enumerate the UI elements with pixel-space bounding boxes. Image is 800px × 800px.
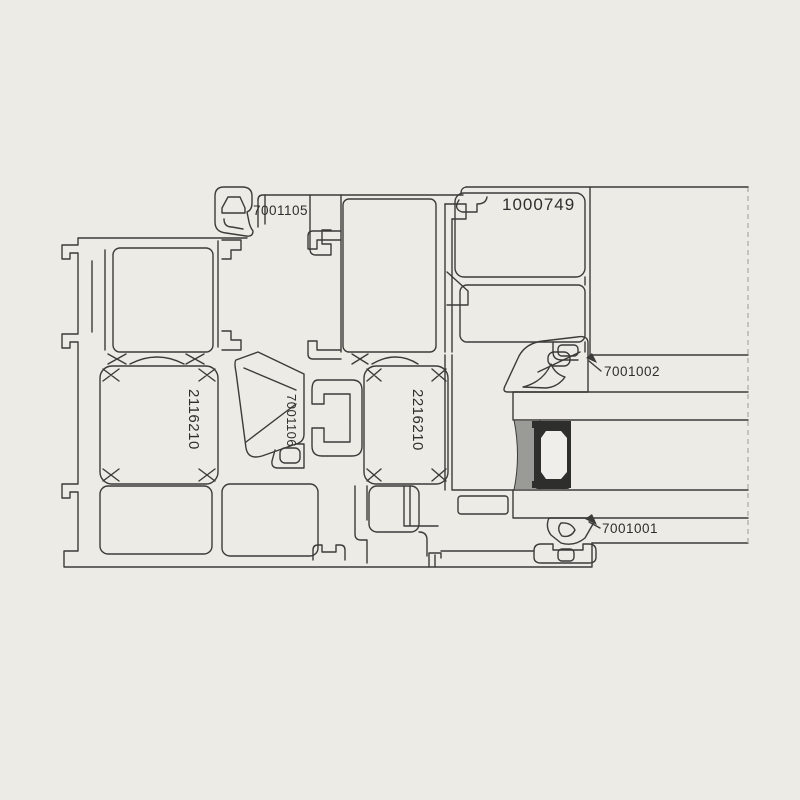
label-glazing-bead: 1000749 <box>502 196 575 213</box>
label-gasket-top: 7001002 <box>604 365 660 379</box>
gasket-bottom-profile <box>534 518 596 563</box>
glazing-unit <box>513 392 748 518</box>
glazing-bead-profile <box>455 187 748 372</box>
sash-profile <box>258 195 534 567</box>
leader-top <box>589 361 601 371</box>
profile-line-art <box>0 0 800 800</box>
glass-pane-bottom <box>513 490 748 518</box>
label-connector: 7001106 <box>285 394 298 447</box>
clip-profile <box>215 187 253 236</box>
spacer-bar-hole <box>541 431 567 479</box>
cross-section-drawing: 7001105 1000749 2116210 7001106 2216210 … <box>0 0 800 800</box>
label-frame-chamber: 2116210 <box>186 389 201 450</box>
label-clip: 7001105 <box>253 204 308 218</box>
glass-pane-top <box>513 392 748 420</box>
label-gasket-bottom: 7001001 <box>602 522 658 536</box>
label-sash-chamber: 2216210 <box>410 389 425 451</box>
